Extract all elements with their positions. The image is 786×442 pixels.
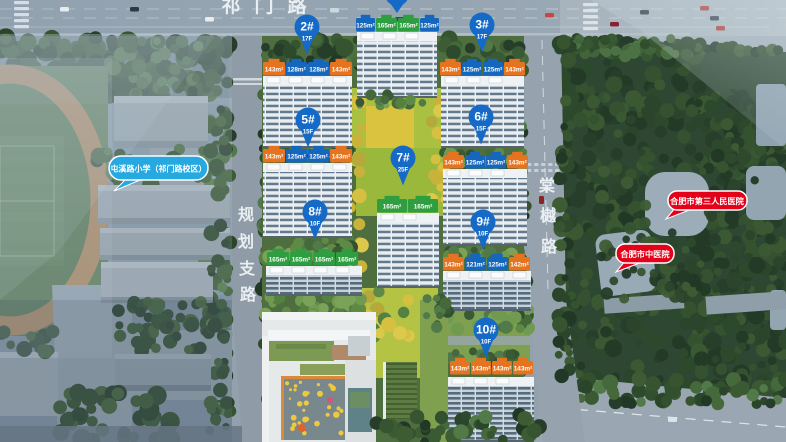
svg-text:165m²: 165m² (377, 23, 395, 30)
svg-text:143m²: 143m² (451, 366, 469, 373)
svg-text:9#: 9# (476, 215, 490, 229)
svg-text:祁: 祁 (221, 0, 240, 17)
svg-text:125m²: 125m² (488, 262, 506, 269)
svg-text:樾: 樾 (540, 206, 557, 225)
svg-text:15F: 15F (303, 130, 314, 136)
svg-text:143m²: 143m² (441, 67, 459, 74)
svg-text:143m²: 143m² (444, 160, 462, 167)
svg-text:143m²: 143m² (472, 366, 490, 373)
svg-text:143m²: 143m² (332, 154, 350, 161)
svg-text:门: 门 (254, 0, 273, 17)
svg-text:125m²: 125m² (309, 154, 327, 161)
svg-text:25F: 25F (398, 168, 409, 174)
svg-text:125m²: 125m² (356, 23, 374, 30)
svg-text:143m²: 143m² (514, 366, 532, 373)
svg-text:17F: 17F (302, 37, 313, 43)
svg-text:合肥市中医院: 合肥市中医院 (619, 249, 670, 259)
svg-text:3#: 3# (475, 18, 489, 32)
svg-text:165m²: 165m² (315, 257, 333, 264)
svg-text:165m²: 165m² (399, 23, 417, 30)
svg-text:8#: 8# (308, 205, 322, 219)
svg-text:121m²: 121m² (466, 262, 484, 269)
svg-text:6#: 6# (474, 110, 488, 124)
svg-text:棠: 棠 (538, 176, 556, 195)
svg-text:10F: 10F (481, 340, 492, 346)
svg-text:165m²: 165m² (292, 257, 310, 264)
svg-text:125m²: 125m² (466, 160, 484, 167)
svg-text:10#: 10# (476, 323, 496, 337)
svg-text:合肥市第三人民医院: 合肥市第三人民医院 (669, 196, 745, 206)
svg-text:165m²: 165m² (338, 257, 356, 264)
svg-text:15F: 15F (476, 127, 487, 133)
svg-text:143m²: 143m² (332, 67, 350, 74)
svg-text:128m²: 128m² (309, 67, 327, 74)
svg-text:10F: 10F (478, 232, 489, 238)
svg-text:10F: 10F (310, 222, 321, 228)
svg-text:5#: 5# (301, 113, 315, 127)
svg-text:125m²: 125m² (487, 160, 505, 167)
svg-text:7#: 7# (396, 151, 410, 165)
svg-text:143m²: 143m² (444, 262, 462, 269)
svg-text:143m²: 143m² (505, 67, 523, 74)
svg-text:划: 划 (238, 232, 254, 251)
svg-text:143m²: 143m² (265, 154, 283, 161)
svg-text:17F: 17F (477, 35, 488, 41)
svg-text:125m²: 125m² (484, 67, 502, 74)
svg-text:路: 路 (287, 0, 307, 17)
svg-text:165m²: 165m² (269, 257, 287, 264)
svg-text:支: 支 (238, 259, 256, 278)
svg-text:165m²: 165m² (414, 204, 432, 211)
svg-text:143m²: 143m² (508, 160, 526, 167)
svg-text:143m²: 143m² (493, 366, 511, 373)
svg-text:屯溪路小学（祁门路校区）: 屯溪路小学（祁门路校区） (111, 164, 207, 174)
svg-text:165m²: 165m² (383, 204, 401, 211)
svg-text:路: 路 (240, 285, 257, 304)
svg-text:规: 规 (238, 206, 254, 224)
svg-text:125m²: 125m² (287, 154, 305, 161)
svg-text:2#: 2# (300, 20, 314, 34)
svg-text:125m²: 125m² (420, 23, 438, 30)
svg-text:125m²: 125m² (463, 67, 481, 74)
svg-text:143m²: 143m² (265, 67, 283, 74)
svg-text:142m²: 142m² (510, 262, 528, 269)
svg-text:128m²: 128m² (287, 67, 305, 74)
svg-text:路: 路 (541, 237, 558, 256)
